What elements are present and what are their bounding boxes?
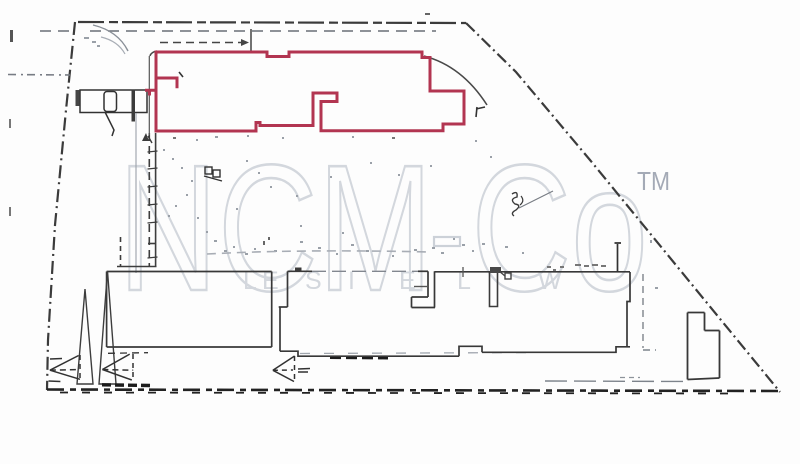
svg-text:TM: TM <box>637 166 670 196</box>
svg-text:NCM Co: NCM Co <box>118 128 648 329</box>
